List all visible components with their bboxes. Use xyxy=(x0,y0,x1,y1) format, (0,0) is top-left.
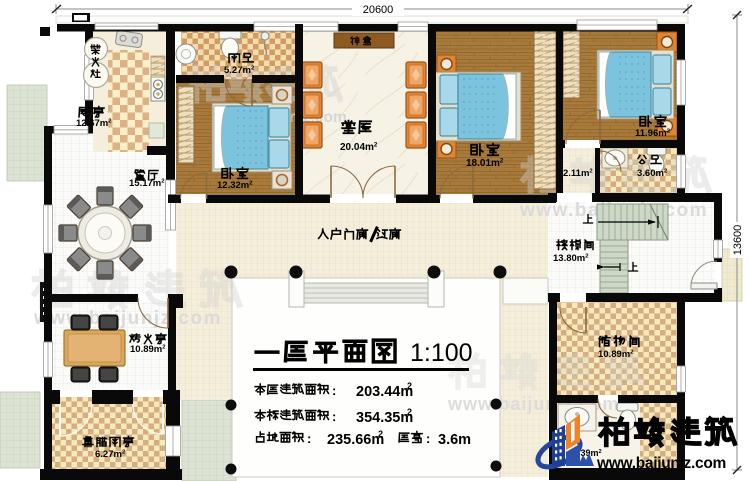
svg-text:235.66m: 235.66m xyxy=(327,432,384,448)
svg-text:3.6m: 3.6m xyxy=(438,432,471,448)
svg-text:15.17m2: 15.17m2 xyxy=(129,178,165,189)
svg-text::: : xyxy=(426,431,430,446)
svg-text:10.89m2: 10.89m2 xyxy=(130,344,166,355)
svg-text::: : xyxy=(332,409,336,424)
svg-text:20600: 20600 xyxy=(363,4,394,16)
svg-text:18.01m2: 18.01m2 xyxy=(466,158,504,170)
svg-text:5.27m2: 5.27m2 xyxy=(224,65,255,76)
svg-text::: : xyxy=(307,431,311,446)
svg-text:13600: 13600 xyxy=(732,225,744,256)
svg-text:11.96m2: 11.96m2 xyxy=(635,128,671,139)
svg-text::: : xyxy=(332,383,336,398)
svg-text:354.35m: 354.35m xyxy=(356,410,413,426)
svg-text:6.27m2: 6.27m2 xyxy=(95,449,126,460)
svg-text:203.44m: 203.44m xyxy=(356,384,413,400)
svg-text:13.80m2: 13.80m2 xyxy=(553,253,589,264)
svg-text:12.32m2: 12.32m2 xyxy=(217,180,253,191)
svg-text:2.11m2: 2.11m2 xyxy=(563,168,593,179)
svg-text:10.89m2: 10.89m2 xyxy=(598,349,634,360)
svg-text:3.60m2: 3.60m2 xyxy=(637,168,668,179)
svg-text:2: 2 xyxy=(407,407,412,417)
svg-text:2: 2 xyxy=(407,381,412,391)
svg-text:www.baijunjz.com: www.baijunjz.com xyxy=(33,308,222,329)
svg-text:12.67m2: 12.67m2 xyxy=(76,118,112,129)
svg-text:www.baijunjz.com: www.baijunjz.com xyxy=(596,455,726,472)
svg-text:1:100: 1:100 xyxy=(410,339,473,367)
svg-text:2: 2 xyxy=(378,429,383,439)
svg-text:20.04m2: 20.04m2 xyxy=(340,142,378,154)
